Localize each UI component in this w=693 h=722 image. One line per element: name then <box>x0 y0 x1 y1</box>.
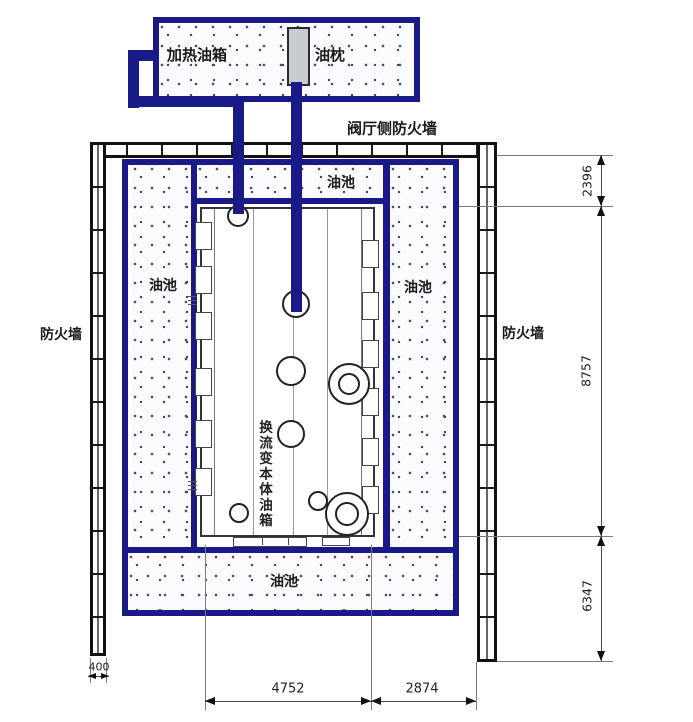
radiator-fin <box>188 296 197 297</box>
pipe-oil-pillow-drop <box>291 82 302 312</box>
oil-pool-left <box>132 165 191 548</box>
arrow-down-icon <box>597 196 605 206</box>
radiator <box>195 312 212 340</box>
radiator <box>362 292 379 320</box>
arrow-right-icon <box>361 697 371 705</box>
tank-divider-3 <box>327 209 328 535</box>
radiator <box>195 420 212 448</box>
bushing-double-circle <box>328 363 370 405</box>
radiator-fin <box>188 300 197 301</box>
arrow-up-icon <box>597 155 605 165</box>
oil-pool-right <box>390 165 453 548</box>
bushing-inner-circle <box>338 373 360 395</box>
arrow-left-icon <box>205 697 215 705</box>
oil-pool-right-divider <box>383 165 390 553</box>
arrow-down-icon <box>597 651 605 661</box>
firewall-left-label: 防火墙 <box>40 324 82 344</box>
dim-bottom-right: 2874 <box>405 682 438 697</box>
oil-pool-top-label: 油池 <box>327 172 355 192</box>
dim-right-middle: 8757 <box>579 355 594 387</box>
tank-foot <box>233 537 307 547</box>
radiator <box>362 240 379 268</box>
tank-foot <box>322 537 350 546</box>
radiator <box>362 340 379 368</box>
radiator <box>195 266 212 294</box>
bushing-inner-circle <box>335 502 359 526</box>
radiator <box>362 438 379 466</box>
radiator <box>195 222 212 250</box>
radiator-fin <box>188 485 197 486</box>
dim-right-top: 2396 <box>580 165 595 197</box>
radiator-fin <box>188 481 197 482</box>
arrow-right-icon <box>101 673 109 679</box>
dim-wall-thickness: 400 <box>89 661 110 674</box>
dim-bottom-left: 4752 <box>271 682 304 697</box>
witness-line-wall-bottom <box>497 661 613 662</box>
witness-line-top <box>497 155 613 156</box>
radiator-fin <box>188 304 197 305</box>
arrow-right-icon <box>466 697 476 705</box>
firewall-right-label: 防火墙 <box>502 323 544 343</box>
arrow-left-icon <box>88 673 96 679</box>
dim-right-bottom: 6347 <box>580 580 595 612</box>
dimension-line-right <box>601 155 602 661</box>
arrow-up-icon <box>597 206 605 216</box>
arrow-left-icon <box>371 697 381 705</box>
transformer-tank-label: 换流变本体油箱 <box>254 420 274 532</box>
oil-pool-left-label: 油池 <box>149 275 177 295</box>
dimension-line-bottom <box>205 701 476 702</box>
witness-line-wall-right <box>476 662 477 710</box>
bushing-circle <box>276 356 306 386</box>
radiator <box>195 468 212 496</box>
witness-line-tank-right <box>371 545 372 710</box>
bushing-double-circle <box>325 492 369 536</box>
heating-tank-label: 加热油箱 <box>167 44 227 65</box>
oil-pool-top <box>197 165 383 198</box>
firewall-right-wall <box>477 142 497 662</box>
tank-foot-divider <box>262 537 263 545</box>
oil-pillow-label: 油枕 <box>315 44 345 65</box>
valve-hall-firewall-label: 阀厅侧防火墙 <box>347 118 437 139</box>
bushing-circle <box>277 420 305 448</box>
arrow-down-icon <box>597 526 605 536</box>
radiator-fin <box>188 489 197 490</box>
firewall-left-wall <box>90 142 106 656</box>
bushing-circle <box>229 503 249 523</box>
tank-foot-divider <box>288 537 289 545</box>
oil-pillow <box>287 27 310 86</box>
drawing-canvas: 加热油箱 油枕 油池 油池 油池 油池 <box>0 0 693 722</box>
oil-pool-bottom-label: 油池 <box>270 571 298 591</box>
radiator <box>195 368 212 396</box>
witness-line-tank-left <box>205 545 206 710</box>
pipe-heating-horizontal-run <box>128 96 244 107</box>
arrow-up-icon <box>597 536 605 546</box>
tank-inner-line-left <box>214 209 215 535</box>
pipe-heating-drop <box>233 96 244 214</box>
oil-pool-right-label: 油池 <box>404 277 432 297</box>
